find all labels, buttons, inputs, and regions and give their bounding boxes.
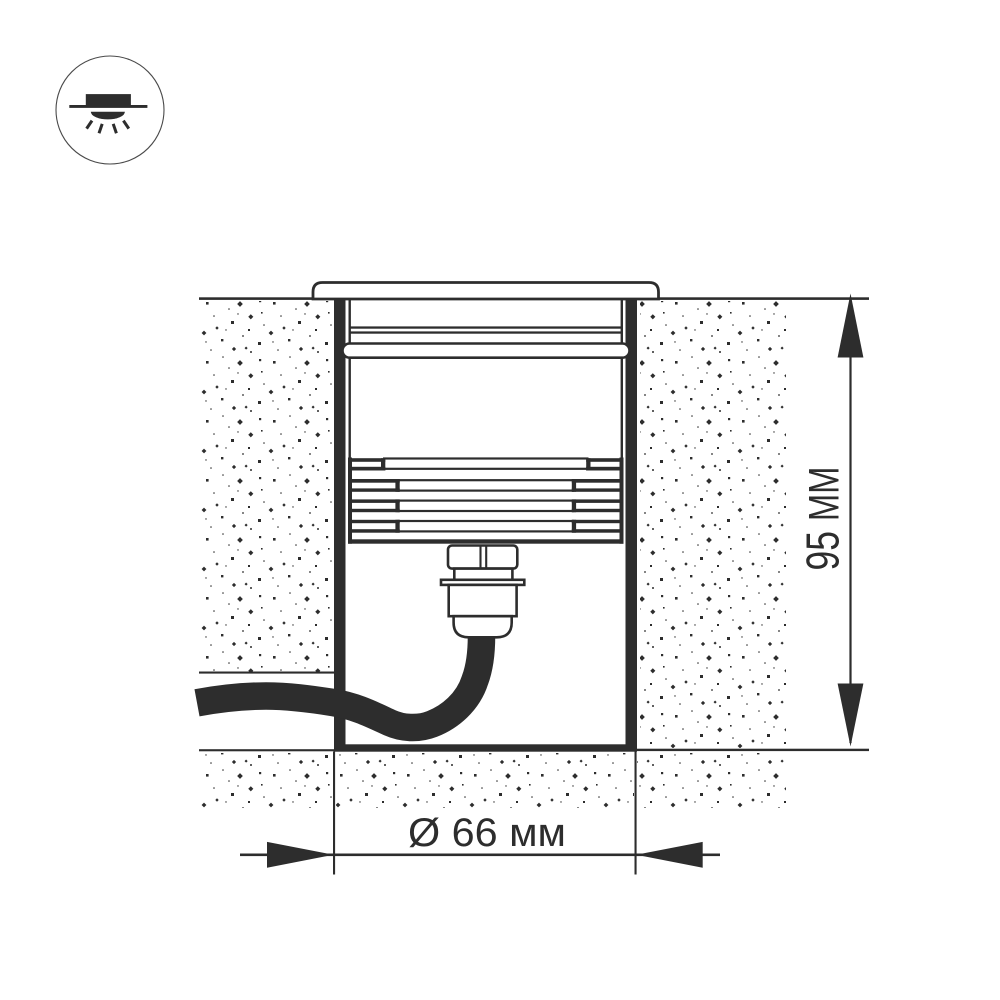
- svg-text:Ø 66 мм: Ø 66 мм: [408, 811, 566, 855]
- svg-text:95 ММ: 95 ММ: [797, 467, 849, 571]
